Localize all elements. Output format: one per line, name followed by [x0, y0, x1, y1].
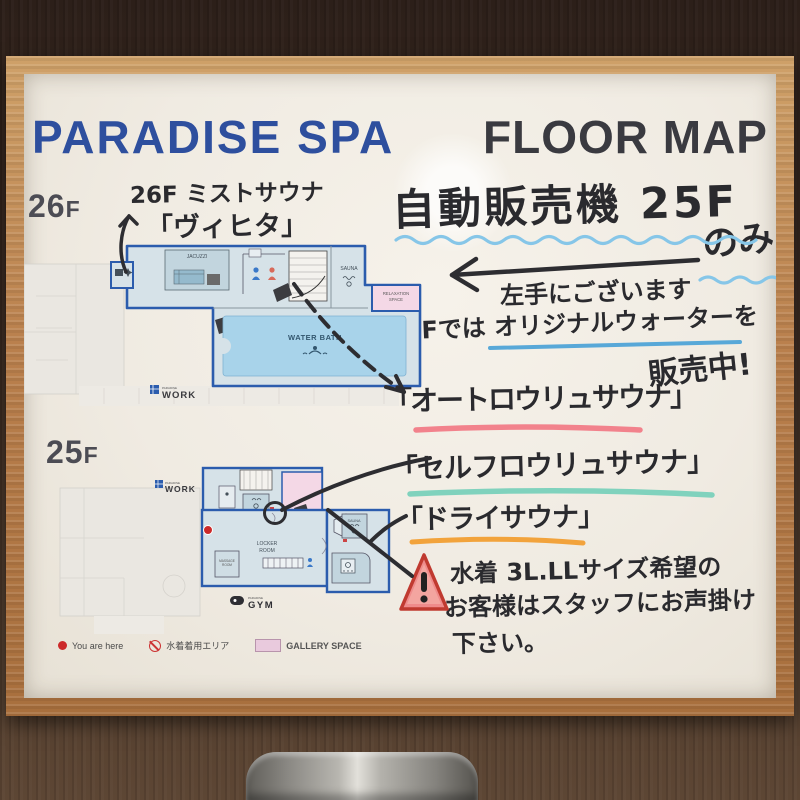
gallery-space-room [282, 472, 322, 510]
poster-title: PARADISE SPA FLOOR MAP [24, 110, 776, 164]
water-bath-area: WATER BATH [215, 316, 406, 376]
jacuzzi-label: JACUZZI [187, 254, 208, 260]
relaxation-label-1: RELAXATION [383, 291, 409, 296]
legend-gallery-space: GALLERY SPACE [255, 639, 361, 652]
wavy-underline-only [700, 277, 776, 283]
massage-label-2: ROOM [222, 563, 232, 567]
sauna-room-right-25f: SAUNA [342, 514, 367, 542]
work-label-25f: WORK [165, 484, 196, 494]
floor-plan-25f: PARADISE WORK [24, 458, 434, 653]
water-bath-label: WATER BATH [288, 333, 342, 342]
legend-you-are-here: You are here [58, 641, 123, 651]
relaxation-space-room: RELAXATION SPACE [372, 285, 420, 311]
gym-logo-25f: PARADISE GYM [230, 596, 274, 611]
photo-scene: PARADISE SPA FLOOR MAP 26F 25F 26F ミストサウ… [0, 0, 800, 800]
locker-label-2: ROOM [259, 548, 275, 554]
you-are-here-dot-icon [58, 641, 67, 650]
gallery-space-swatch [255, 639, 281, 652]
gym-label: GYM [248, 600, 274, 611]
floor-label-26f: 26F [28, 188, 81, 225]
sauna-26f-label: SAUNA [340, 266, 358, 272]
mist-sauna-room [111, 262, 133, 288]
floor-26-f: F [66, 196, 81, 222]
sauna-right-label: SAUNA [347, 519, 361, 523]
background-floor-25f [60, 488, 200, 634]
floor-plan-26f: JACUZZI [24, 236, 424, 408]
legend-swimwear-area: 水着着用エリア [149, 639, 229, 652]
warning-line-2: お客様はスタッフにお声掛け [444, 580, 757, 623]
note-self-loyly-sauna: 「セルフロウリュサウナ」 [389, 440, 714, 488]
locker-label-1: LOCKER [257, 541, 278, 547]
gallery-space-label: GALLERY SPACE [286, 641, 361, 651]
jacuzzi-room: JACUZZI [165, 250, 229, 290]
trash-can [246, 752, 478, 800]
floor-26-number: 26 [28, 188, 66, 224]
poster-frame: PARADISE SPA FLOOR MAP 26F 25F 26F ミストサウ… [6, 56, 794, 716]
map-legend: You are here 水着着用エリア GALLERY SPACE [58, 639, 362, 652]
work-label-26f: WORK [162, 390, 196, 401]
relaxation-label-2: SPACE [389, 297, 403, 302]
no-entry-icon [149, 640, 161, 652]
underline-dry-sauna-orange [412, 539, 583, 543]
note-only: のみ [699, 209, 776, 268]
massage-room: MASSAGE ROOM [215, 551, 239, 577]
warning-line-3: 下さい。 [452, 622, 549, 659]
note-auto-loyly-sauna: 「オートロウリュサウナ」 [384, 375, 697, 420]
title-floor-map: FLOOR MAP [483, 110, 768, 164]
you-are-here-label: You are here [72, 641, 123, 651]
floor-map-poster: PARADISE SPA FLOOR MAP 26F 25F 26F ミストサウ… [24, 74, 776, 698]
title-paradise-spa: PARADISE SPA [32, 110, 394, 164]
underline-auto-sauna-pink [416, 427, 640, 430]
note-original-water: 26Fでは オリジナルウォーターを [387, 296, 758, 347]
you-are-here-marker [204, 526, 213, 535]
warning-triangle-icon [398, 550, 450, 616]
note-vending-machine: 自動販売機 25F [391, 167, 739, 238]
dry-sauna-room-25f [332, 553, 370, 583]
swimwear-area-label: 水着着用エリア [166, 639, 229, 652]
